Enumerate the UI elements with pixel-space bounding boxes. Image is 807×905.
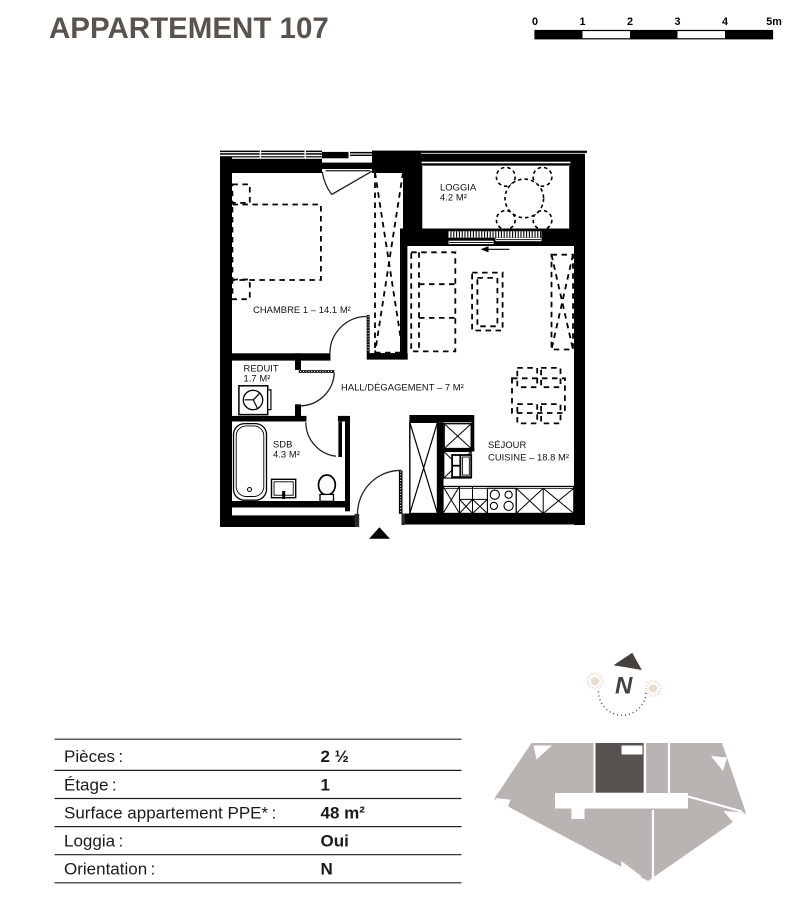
svg-text:N: N [615,673,633,700]
svg-text:Orientation :: Orientation : [64,860,155,879]
svg-text:Surface appartement PPE* :: Surface appartement PPE* : [64,804,276,823]
svg-text:CHAMBRE 1 – 14.1 M²: CHAMBRE 1 – 14.1 M² [253,304,351,315]
svg-text:2 ½: 2 ½ [321,747,349,766]
svg-text:1.7 M²: 1.7 M² [244,372,271,383]
svg-text:3: 3 [674,16,680,28]
svg-text:5m: 5m [766,16,782,28]
svg-text:4: 4 [722,16,728,28]
svg-text:2: 2 [627,16,633,28]
svg-text:1: 1 [321,776,330,795]
svg-text:0: 0 [532,16,538,28]
svg-text:APPARTEMENT 107: APPARTEMENT 107 [49,12,329,45]
svg-text:4.2 M²: 4.2 M² [440,192,467,203]
svg-text:Oui: Oui [321,832,349,851]
svg-text:1: 1 [579,16,585,28]
svg-text:48 m²: 48 m² [321,804,366,823]
svg-text:HALL/DÉGAGEMENT – 7 M²: HALL/DÉGAGEMENT – 7 M² [341,382,464,393]
svg-text:Étage :: Étage : [64,776,117,795]
svg-text:CUISINE – 18.8 M²: CUISINE – 18.8 M² [488,452,569,463]
svg-text:Loggia :: Loggia : [64,832,123,851]
svg-text:N: N [321,860,333,879]
svg-text:Pièces :: Pièces : [64,747,123,766]
svg-text:4.3 M²: 4.3 M² [273,448,300,459]
svg-text:SÉJOUR: SÉJOUR [488,439,527,450]
